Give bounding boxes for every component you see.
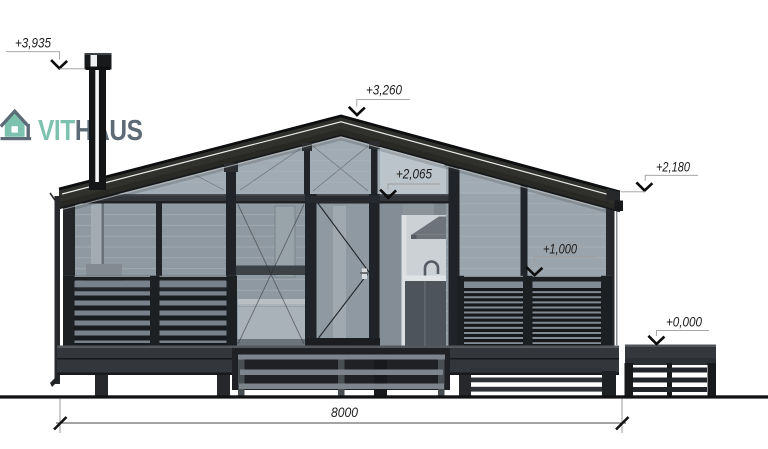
svg-text:+2,180: +2,180 <box>656 159 690 175</box>
svg-text:+0,000: +0,000 <box>666 315 702 331</box>
svg-text:8000: 8000 <box>331 405 358 421</box>
svg-text:+2,065: +2,065 <box>396 166 432 182</box>
svg-text:+3,260: +3,260 <box>366 82 402 98</box>
svg-text:+1,000: +1,000 <box>543 241 577 257</box>
svg-text:+3,935: +3,935 <box>15 35 51 51</box>
